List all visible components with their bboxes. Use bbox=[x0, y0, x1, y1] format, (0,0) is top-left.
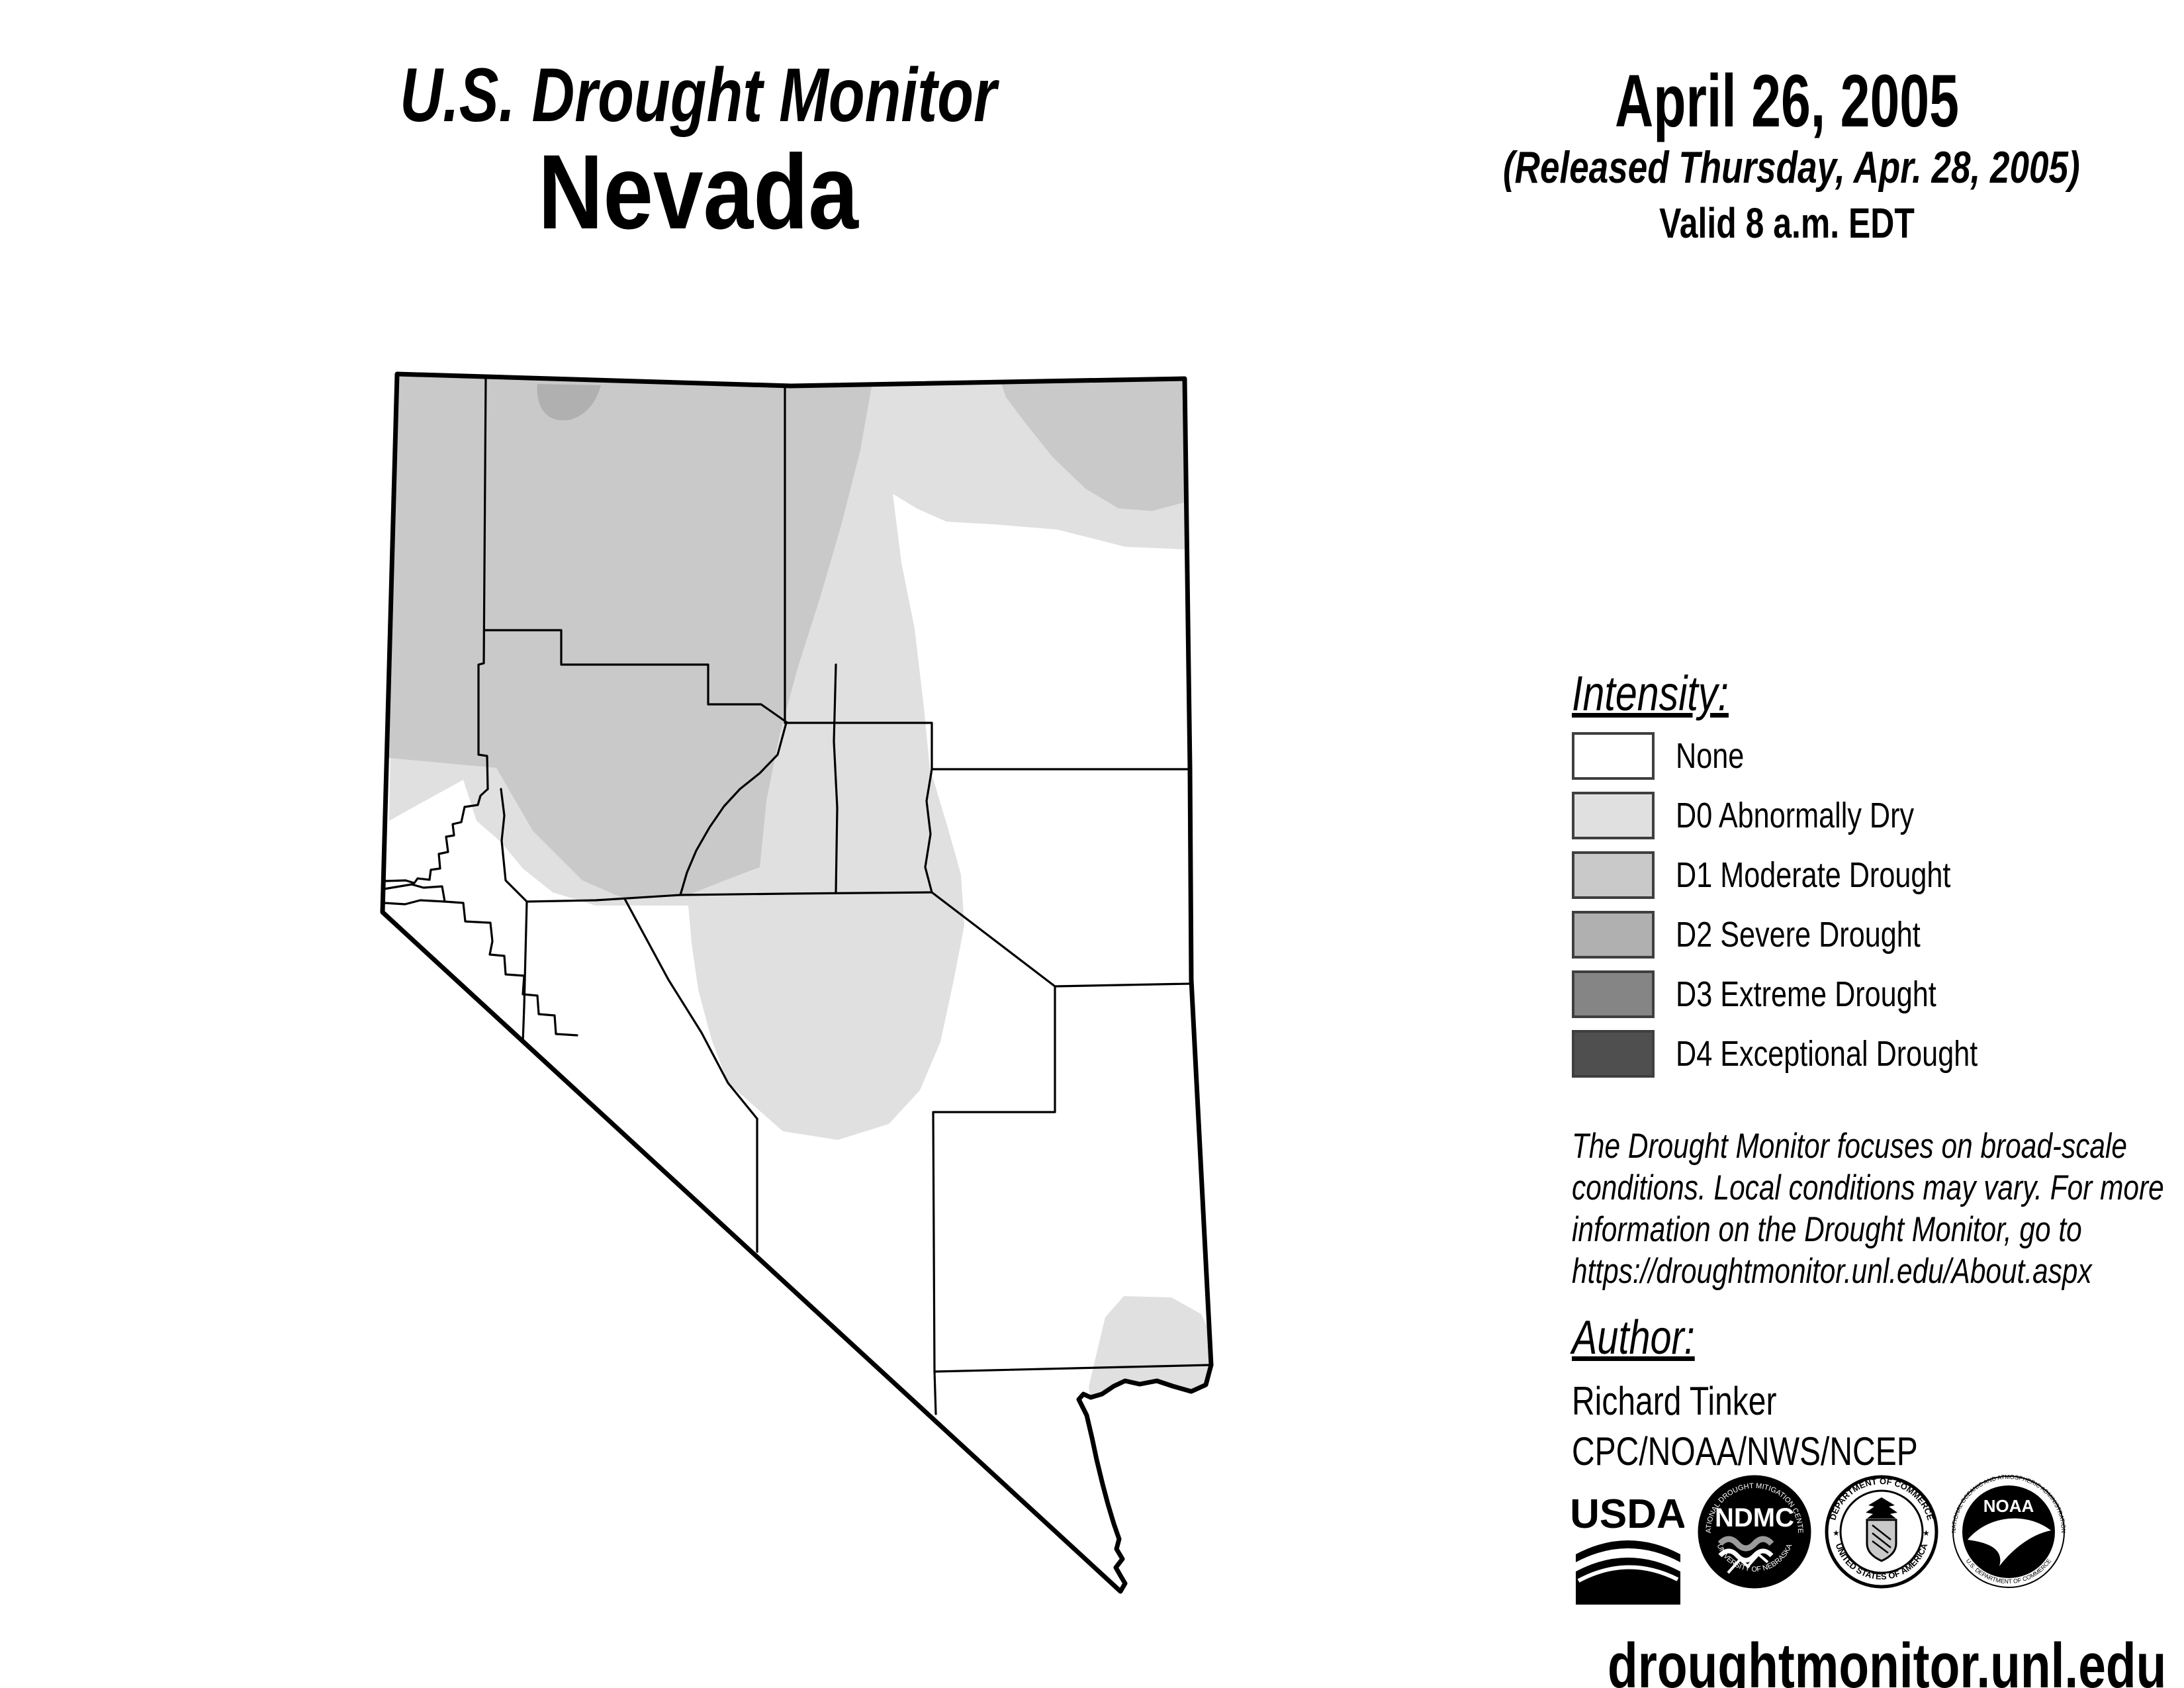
usda-logo-text: USDA bbox=[1572, 1493, 1684, 1537]
legend-label-d3: D3 Extreme Drought bbox=[1676, 974, 1936, 1015]
report-date: April 26, 2005 bbox=[1525, 58, 2049, 144]
ndmc-logo: NATIONAL DROUGHT MITIGATION CENTER UNIVE… bbox=[1698, 1475, 1811, 1589]
valid-time: Valid 8 a.m. EDT bbox=[1503, 199, 2071, 248]
page-title: U.S. Drought Monitor bbox=[376, 52, 1021, 139]
ndmc-logo-text: NDMC bbox=[1715, 1503, 1794, 1532]
noaa-logo: NATIONAL OCEANIC AND ATMOSPHERIC ADMINIS… bbox=[1952, 1475, 2066, 1589]
legend-swatch-d3 bbox=[1572, 970, 1655, 1018]
noaa-logo-text: NOAA bbox=[1983, 1496, 2034, 1516]
legend-swatch-d0 bbox=[1572, 792, 1655, 839]
legend-swatch-d1 bbox=[1572, 851, 1655, 899]
author-heading: Author: bbox=[1572, 1311, 1695, 1365]
site-url: droughtmonitor.unl.edu bbox=[1608, 1630, 2072, 1688]
legend-swatch-d4 bbox=[1572, 1030, 1655, 1078]
author-name: Richard Tinker bbox=[1572, 1378, 1776, 1424]
usda-logo: USDA bbox=[1572, 1493, 1684, 1609]
legend-heading: Intensity: bbox=[1572, 665, 1729, 722]
legend-row-d3: D3 Extreme Drought bbox=[1572, 968, 2001, 1020]
author-org: CPC/NOAA/NWS/NCEP bbox=[1572, 1429, 1918, 1474]
disclaimer: The Drought Monitor focuses on broad-sca… bbox=[1572, 1125, 2048, 1292]
legend-row-none: None bbox=[1572, 730, 1761, 782]
legend-label-d2: D2 Severe Drought bbox=[1676, 914, 1921, 955]
legend-row-d4: D4 Exceptional Drought bbox=[1572, 1028, 2053, 1080]
disclaimer-line: conditions. Local conditions may vary. F… bbox=[1572, 1167, 2048, 1209]
legend-row-d2: D2 Severe Drought bbox=[1572, 909, 1981, 961]
legend-row-d0: D0 Abnormally Dry bbox=[1572, 790, 1974, 841]
svg-text:★: ★ bbox=[1923, 1528, 1930, 1538]
legend-label-d4: D4 Exceptional Drought bbox=[1676, 1033, 1978, 1074]
legend-swatch-none bbox=[1572, 732, 1655, 780]
legend-label-d1: D1 Moderate Drought bbox=[1676, 855, 1950, 896]
doc-logo: DEPARTMENT OF COMMERCE UNITED STATES OF … bbox=[1825, 1475, 1938, 1589]
logo-row: USDA NATIONAL DROUGHT MITIGATION CENTER … bbox=[1572, 1475, 2154, 1609]
drought-monitor-page: U.S. Drought Monitor Nevada April 26, 20… bbox=[0, 0, 2184, 1688]
disclaimer-line: The Drought Monitor focuses on broad-sca… bbox=[1572, 1125, 2048, 1167]
legend-swatch-d2 bbox=[1572, 911, 1655, 959]
legend-row-d1: D1 Moderate Drought bbox=[1572, 849, 2019, 901]
svg-text:★: ★ bbox=[1833, 1528, 1840, 1538]
legend-label-d0: D0 Abnormally Dry bbox=[1676, 795, 1914, 836]
released-date: (Released Thursday, Apr. 28, 2005) bbox=[1503, 142, 2071, 193]
disclaimer-line: https://droughtmonitor.unl.edu/About.asp… bbox=[1572, 1250, 2048, 1292]
region-title: Nevada bbox=[347, 131, 1050, 253]
disclaimer-line: information on the Drought Monitor, go t… bbox=[1572, 1209, 2048, 1250]
legend-label-none: None bbox=[1676, 735, 1744, 776]
